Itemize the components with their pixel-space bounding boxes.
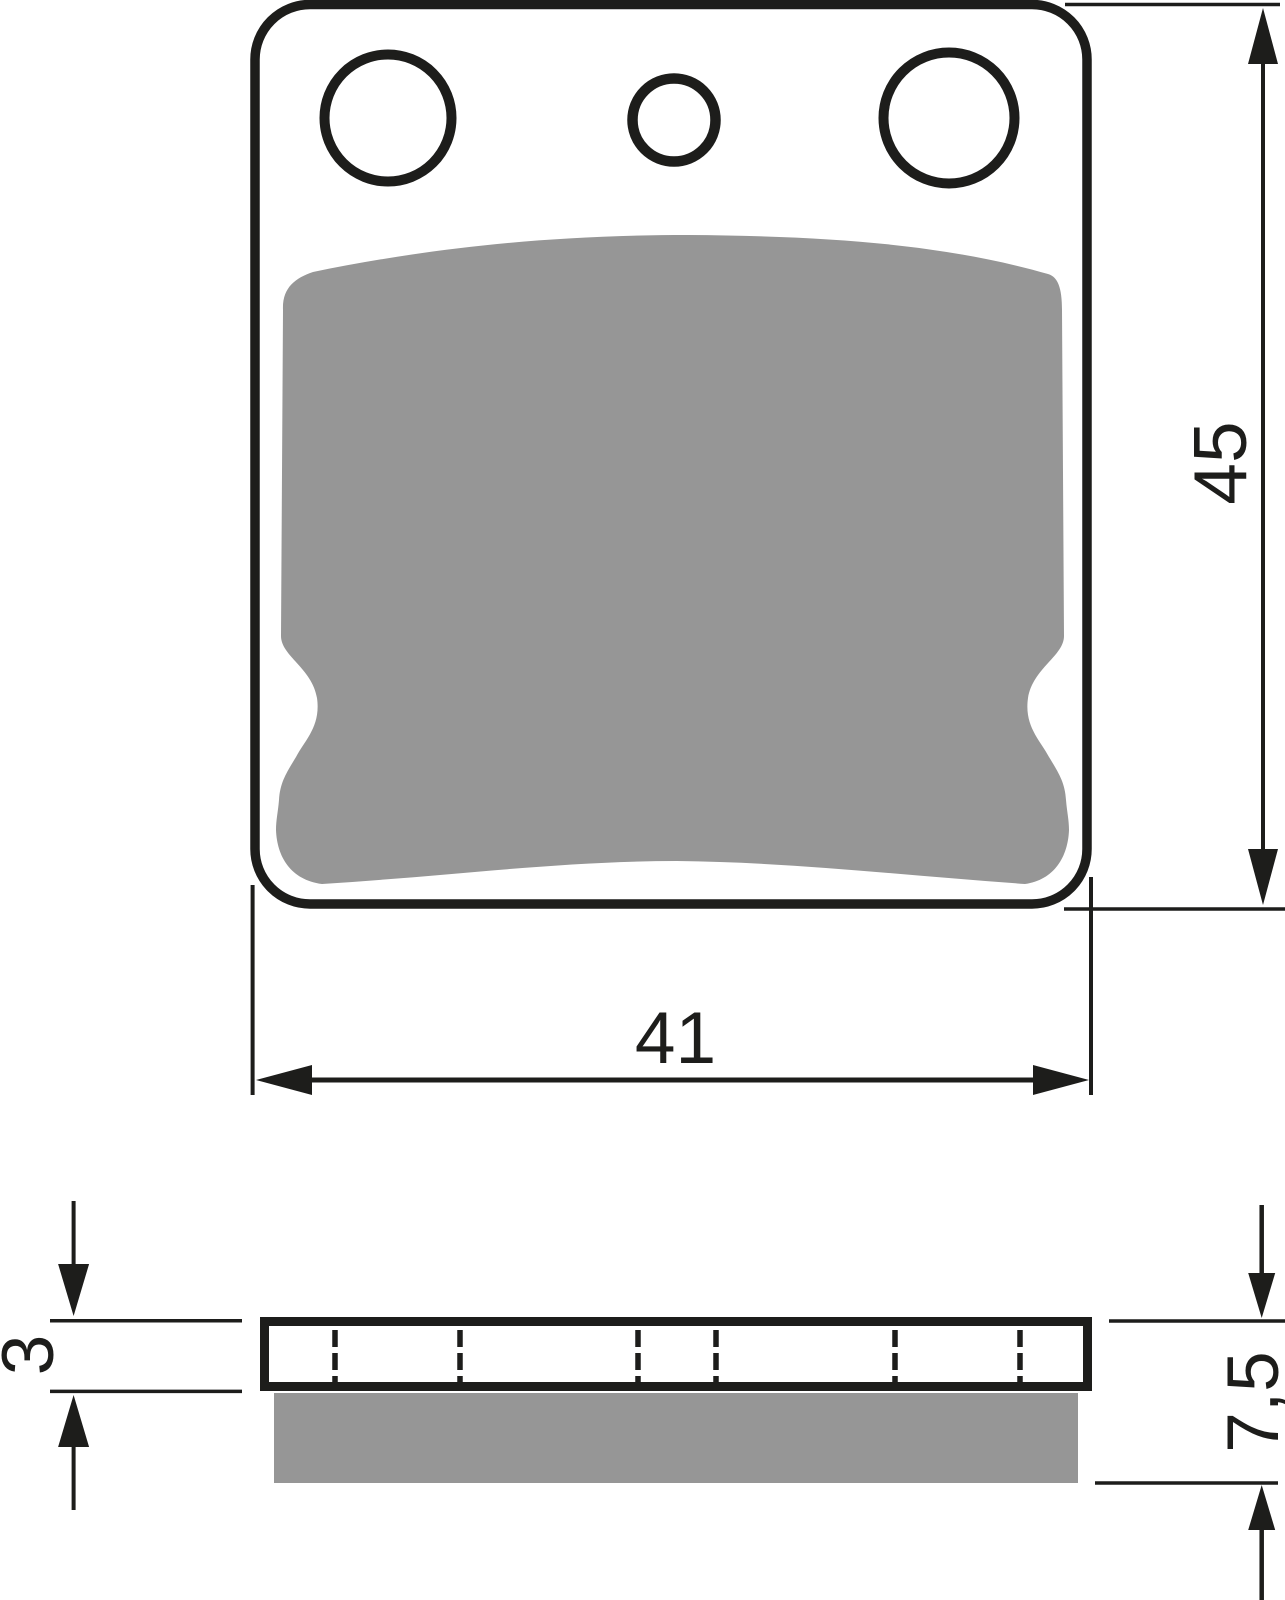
svg-text:3: 3	[0, 1335, 69, 1376]
svg-text:41: 41	[635, 998, 716, 1079]
svg-text:45: 45	[1178, 421, 1262, 504]
svg-text:7,5: 7,5	[1213, 1351, 1285, 1452]
